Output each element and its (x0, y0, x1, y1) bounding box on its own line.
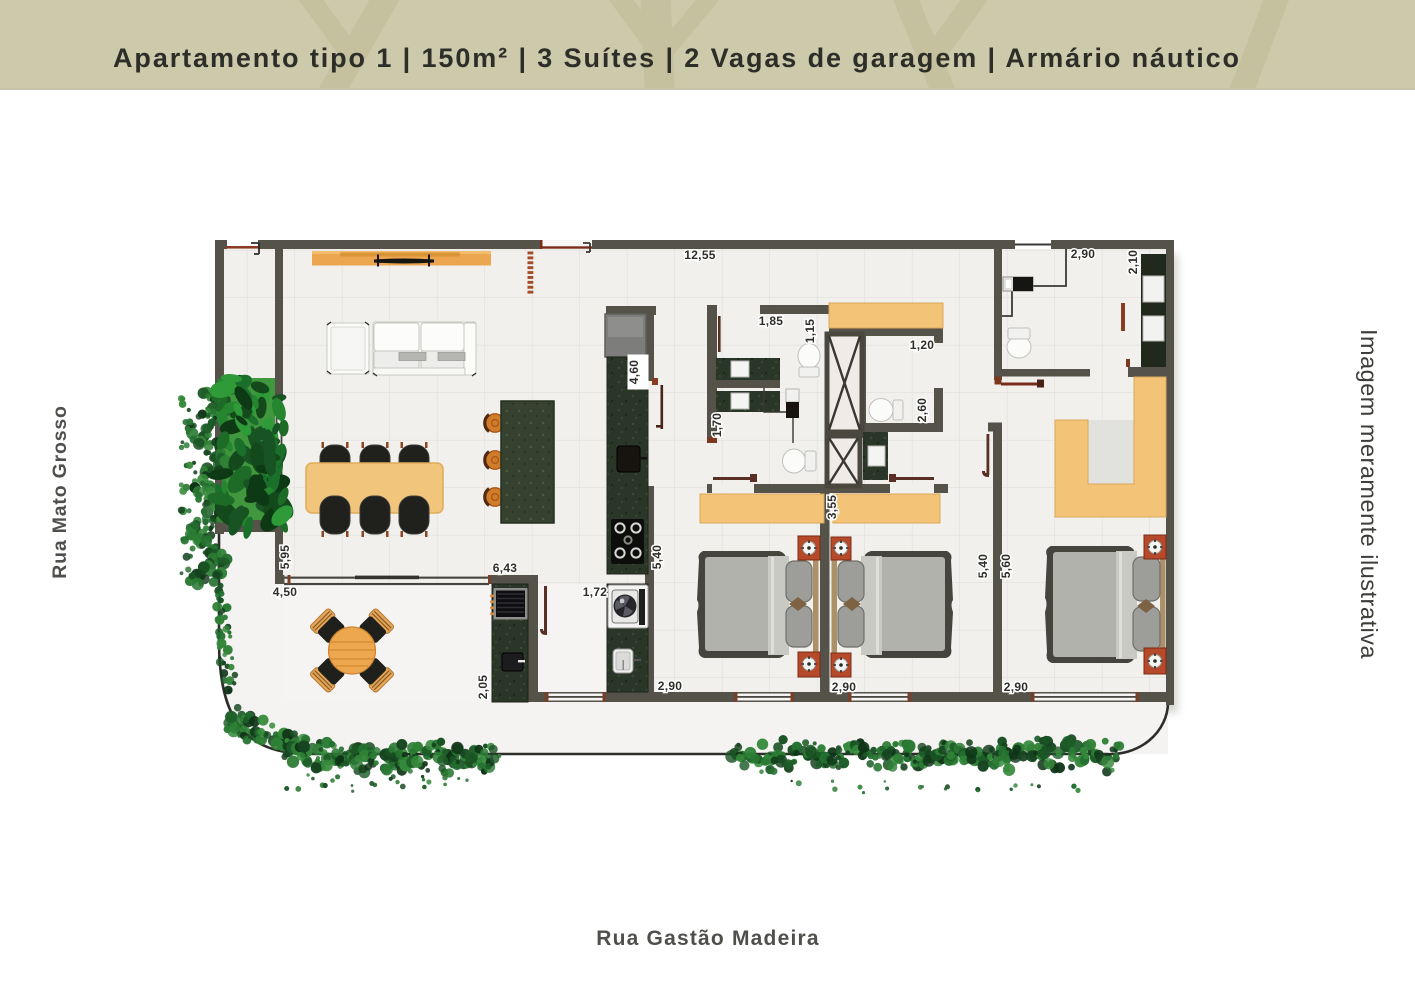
svg-text:5,60: 5,60 (999, 554, 1013, 579)
svg-text:2,10: 2,10 (1126, 250, 1140, 275)
svg-text:2,90: 2,90 (1071, 247, 1096, 261)
svg-text:1,20: 1,20 (910, 338, 935, 352)
svg-text:1,85: 1,85 (759, 314, 784, 328)
svg-text:Imagem meramente ilustrativa: Imagem meramente ilustrativa (1356, 329, 1382, 659)
svg-text:Apartamento tipo 1 | 150m² | 3: Apartamento tipo 1 | 150m² | 3 Suítes | … (113, 43, 1241, 73)
svg-text:2,90: 2,90 (1004, 680, 1029, 694)
svg-text:4,60: 4,60 (627, 360, 641, 385)
svg-text:Rua Mato Grosso: Rua Mato Grosso (49, 405, 71, 578)
svg-text:1,72: 1,72 (583, 585, 608, 599)
svg-text:4,50: 4,50 (273, 585, 298, 599)
svg-text:6,43: 6,43 (493, 561, 518, 575)
svg-text:Rua Gastão Madeira: Rua Gastão Madeira (596, 927, 820, 950)
svg-text:2,60: 2,60 (915, 398, 929, 423)
svg-text:2,90: 2,90 (832, 680, 857, 694)
svg-text:1,15: 1,15 (803, 319, 817, 344)
svg-text:12,55: 12,55 (684, 248, 716, 262)
svg-text:2,05: 2,05 (476, 675, 490, 700)
svg-text:5,40: 5,40 (976, 554, 990, 579)
svg-text:2,90: 2,90 (658, 679, 683, 693)
svg-text:5,40: 5,40 (650, 545, 664, 570)
svg-text:1,70: 1,70 (710, 413, 724, 438)
svg-text:3,55: 3,55 (825, 495, 839, 520)
svg-text:5,95: 5,95 (278, 545, 292, 570)
